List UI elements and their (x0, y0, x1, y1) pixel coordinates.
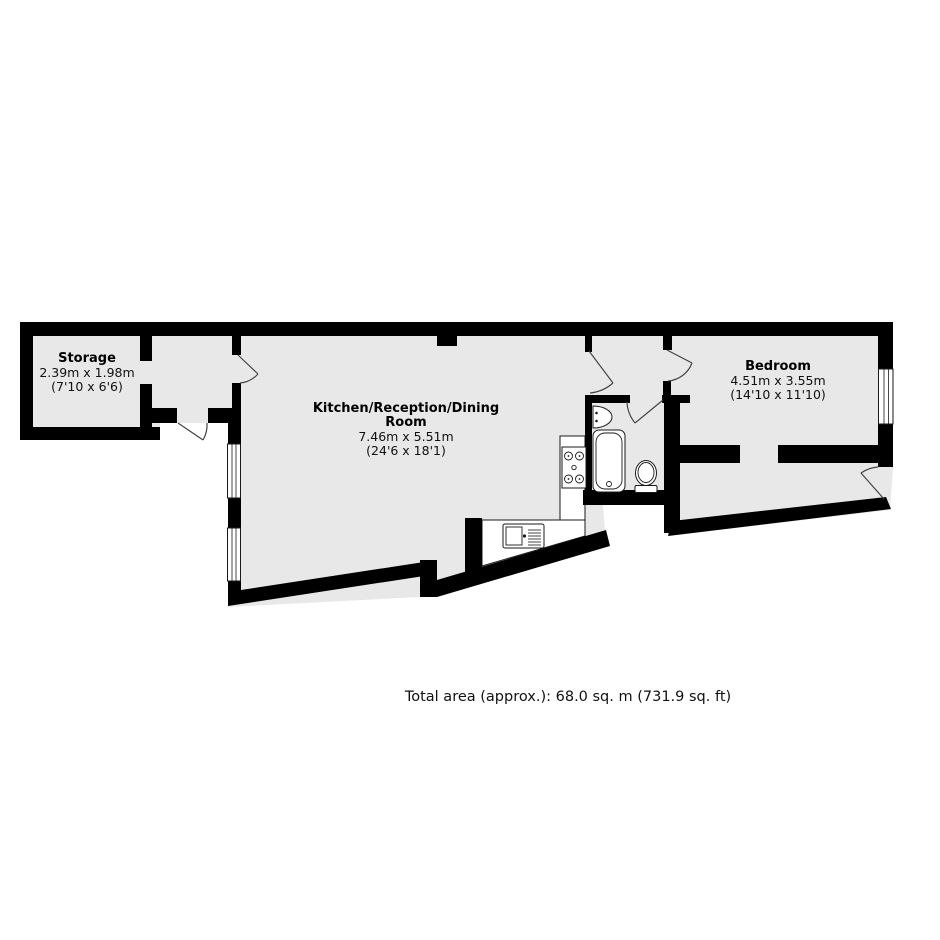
window-kitchen-1 (228, 444, 241, 498)
wall-bathroom-lobby (592, 395, 630, 403)
wall-right-a (878, 336, 893, 369)
bedroom-label: Bedroom 4.51m x 3.55m (14'10 x 11'10) (730, 360, 826, 402)
storage-dims-imperial: (7'10 x 6'6) (39, 380, 134, 394)
wall-right-b (878, 424, 893, 467)
wall-top (20, 322, 893, 336)
wall-bottom-step (420, 560, 437, 597)
toilet (635, 461, 657, 493)
kitchen-name-line1: Kitchen/Reception/Dining (313, 402, 499, 416)
wall-bedroom-left-jog (662, 395, 690, 403)
wall-kitchen-left-b (228, 498, 241, 528)
bathtub (593, 430, 625, 492)
kitchen-name-line2: Room (313, 416, 499, 430)
wall-storage-bottom (20, 427, 160, 440)
entrance-door (178, 423, 207, 440)
bedroom-dims-metric: 4.51m x 3.55m (730, 374, 826, 388)
wall-bedroom-left-stub (663, 336, 672, 350)
storage-name: Storage (39, 352, 134, 366)
wall-left (20, 322, 33, 440)
wall-bathroom-left-a (585, 336, 592, 352)
bedroom-dims-imperial: (14'10 x 11'10) (730, 388, 826, 402)
window-kitchen-2 (228, 528, 241, 581)
kitchen-dims-imperial: (24'6 x 18'1) (313, 444, 499, 458)
kitchen-sink (503, 524, 544, 548)
storage-label: Storage 2.39m x 1.98m (7'10 x 6'6) (39, 352, 134, 394)
window-bedroom (879, 369, 894, 424)
wall-hall-bottom-a (145, 408, 177, 423)
floorplan-svg (0, 0, 940, 940)
wall-bathroom-right (664, 403, 680, 533)
kitchen-label: Kitchen/Reception/Dining Room 7.46m x 5.… (313, 402, 499, 458)
total-area-text: Total area (approx.): 68.0 sq. m (731.9 … (405, 689, 731, 705)
wall-bedroom-bottom-b (778, 445, 881, 463)
kitchen-dims-metric: 7.46m x 5.51m (313, 430, 499, 444)
hob (562, 447, 586, 488)
wall-bedroom-bottom-a (666, 445, 740, 463)
wall-hall-kitchen-a (232, 336, 241, 355)
bedroom-name: Bedroom (730, 360, 826, 374)
wall-counter-cap (465, 518, 482, 575)
wall-storage-right-a (140, 336, 152, 361)
wall-kitchen-left-a (228, 408, 241, 444)
storage-dims-metric: 2.39m x 1.98m (39, 366, 134, 380)
wall-top-pier (437, 336, 457, 346)
